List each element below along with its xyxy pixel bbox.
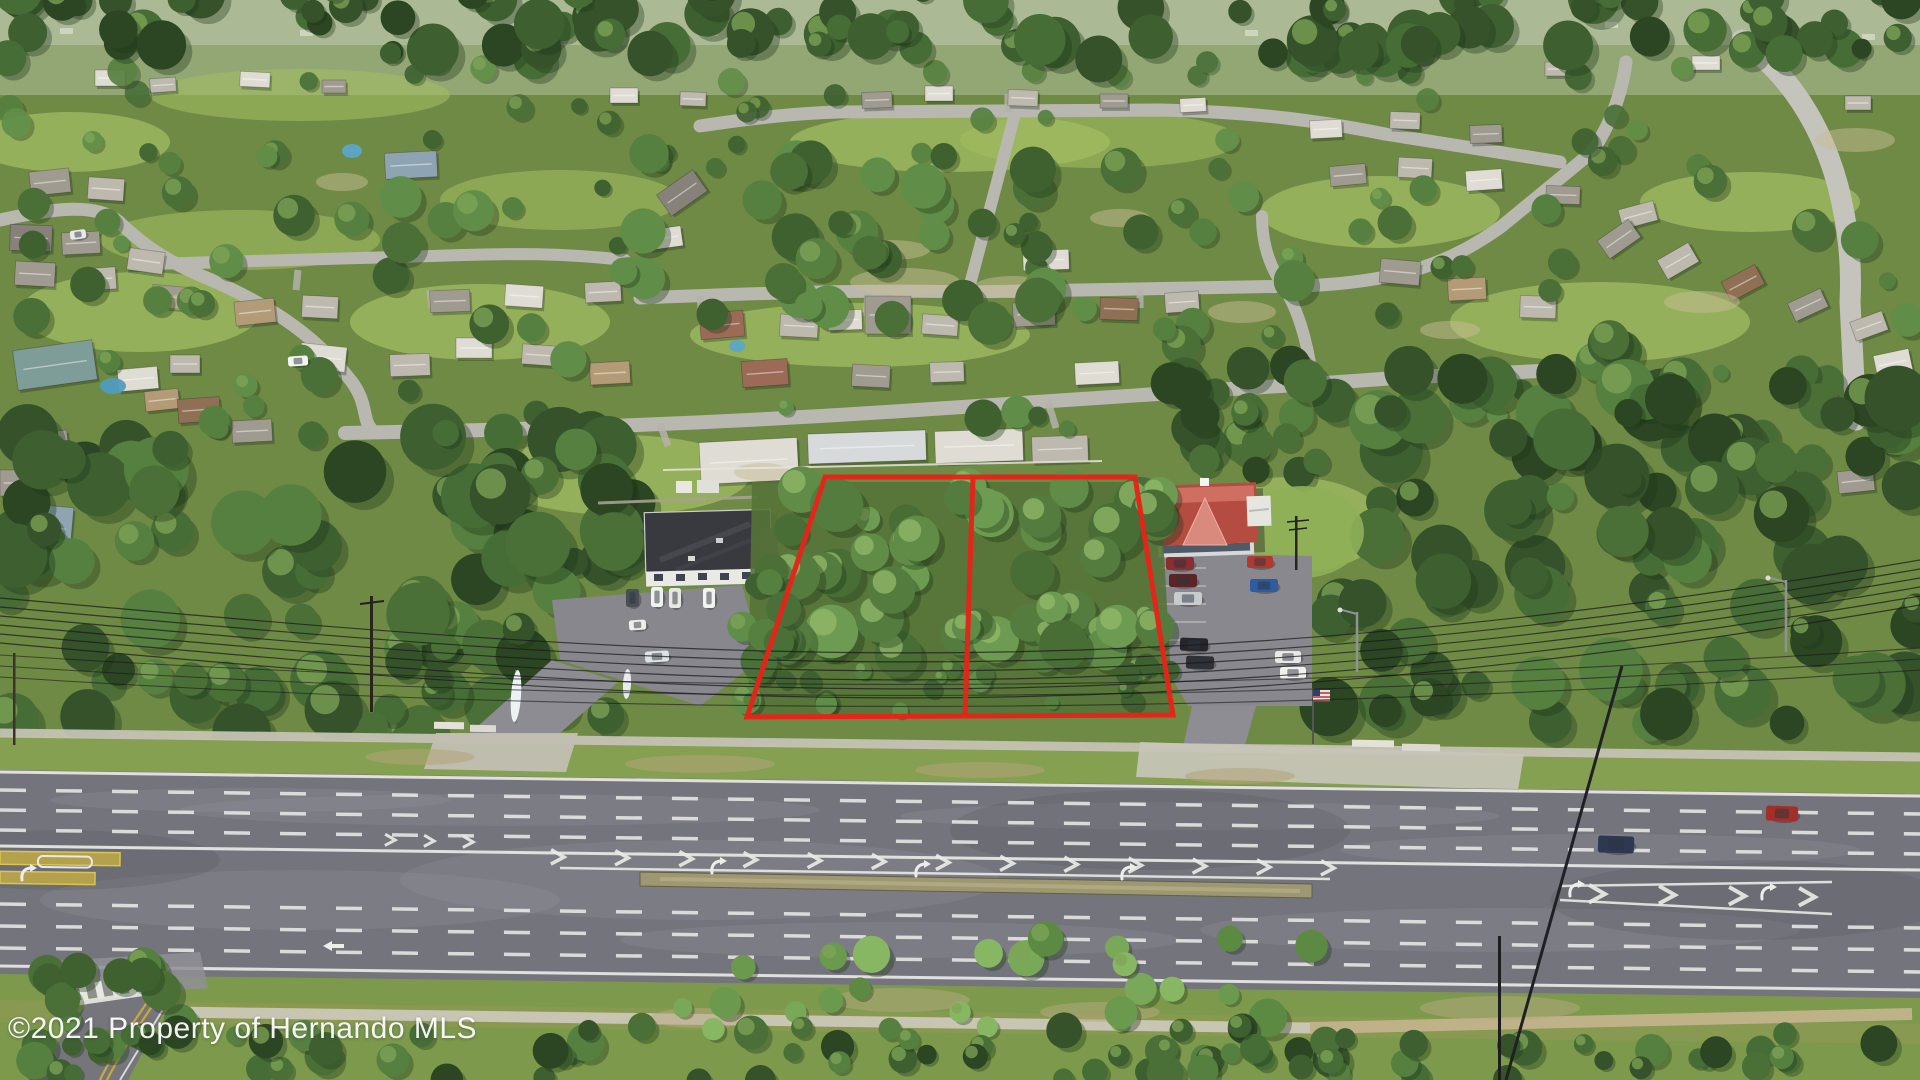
watermark: ©2021 Property of Hernando MLS bbox=[8, 1012, 477, 1046]
highway bbox=[0, 770, 1920, 999]
aerial-photo-canvas bbox=[0, 0, 1920, 1080]
aerial-listing-photo: ©2021 Property of Hernando MLS bbox=[0, 0, 1920, 1080]
